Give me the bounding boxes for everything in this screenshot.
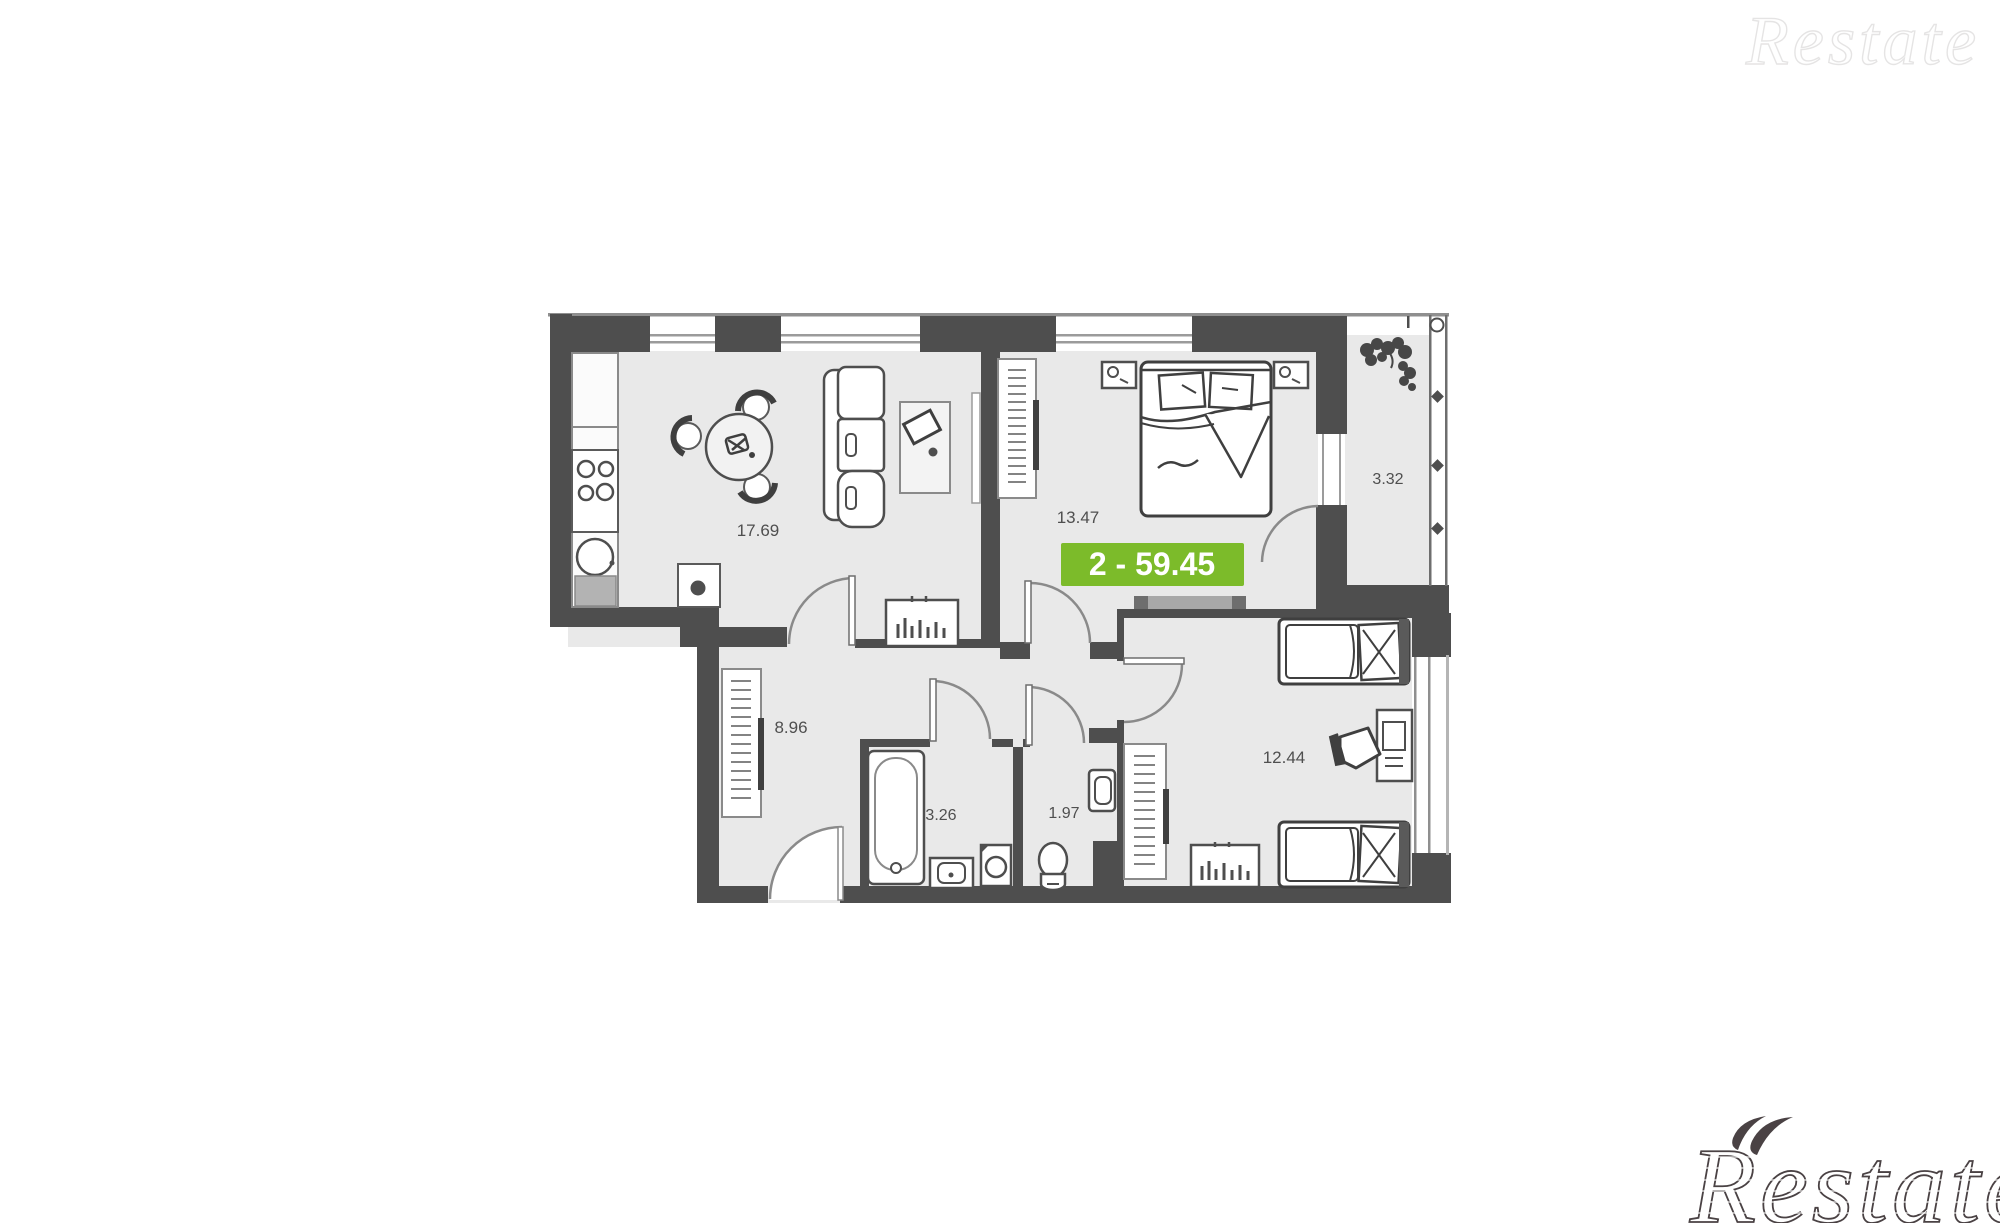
- svg-text:2 - 59.45: 2 - 59.45: [1089, 546, 1215, 582]
- svg-text:17.69: 17.69: [737, 521, 780, 540]
- svg-text:3.26: 3.26: [925, 807, 956, 824]
- svg-text:13.47: 13.47: [1057, 508, 1100, 527]
- svg-text:1.97: 1.97: [1048, 805, 1079, 822]
- svg-text:Restate: Restate: [1689, 1127, 2000, 1223]
- svg-text:Restate: Restate: [1745, 3, 1980, 80]
- svg-text:12.44: 12.44: [1263, 748, 1306, 767]
- svg-text:3.32: 3.32: [1372, 471, 1403, 488]
- svg-text:8.96: 8.96: [774, 718, 807, 737]
